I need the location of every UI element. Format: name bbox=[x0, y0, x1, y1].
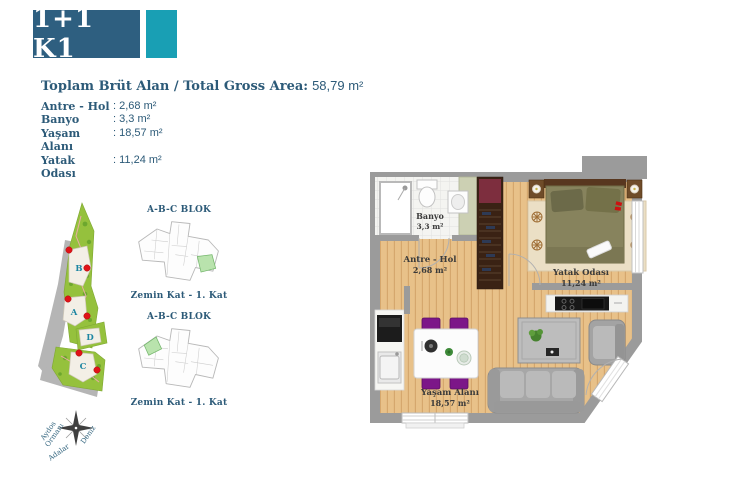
room-row-antre: Antre - Hol : 2,68 m² bbox=[41, 100, 163, 113]
compass-rose: Aydos Ormanı Deniz Adalar bbox=[26, 386, 126, 478]
label-antre: Antre - Hol bbox=[403, 255, 458, 265]
label-banyo: Banyo bbox=[416, 211, 444, 221]
badge-accent-block bbox=[146, 10, 177, 58]
highlighted-unit bbox=[197, 255, 215, 272]
wall-stub bbox=[404, 286, 410, 314]
label-yatak: Yatak Odası bbox=[552, 268, 610, 278]
block-diagram-1: A-B-C BLOK Zemin Kat - 1. Kat bbox=[126, 205, 232, 301]
total-area-heading: Toplam Brüt Alan / Total Gross Area:58,7… bbox=[41, 78, 363, 94]
total-area-label: Toplam Brüt Alan / Total Gross Area: bbox=[41, 79, 308, 94]
room-value: : 11,24 m² bbox=[113, 154, 162, 181]
label-antre-area: 2,68 m² bbox=[413, 265, 448, 275]
floor-plan-sheet: 1+1 K1 Toplam Brüt Alan / Total Gross Ar… bbox=[0, 0, 750, 500]
site-block-label-c: C bbox=[80, 362, 87, 372]
apartment-floor-plan: Banyo 3,3 m² Antre - Hol 2,68 m² Yatak O… bbox=[360, 155, 715, 465]
block-diagram-title: A-B-C BLOK bbox=[126, 205, 232, 215]
bathroom-wall bbox=[375, 235, 419, 241]
site-block-label-d: D bbox=[86, 333, 94, 343]
kitchen-counter bbox=[546, 295, 628, 312]
room-label: Antre - Hol bbox=[41, 100, 113, 113]
site-block-label-b: B bbox=[75, 264, 82, 274]
living-window bbox=[402, 413, 468, 428]
wardrobe bbox=[477, 177, 503, 289]
total-area-value: 58,79 m² bbox=[312, 78, 363, 93]
unit-type-badge: 1+1 K1 bbox=[33, 10, 140, 58]
dining-set bbox=[414, 318, 478, 389]
label-yasam-area: 18,57 m² bbox=[430, 398, 470, 408]
site-block-label-a: A bbox=[70, 308, 78, 318]
label-yatak-area: 11,24 m² bbox=[561, 278, 601, 288]
room-label: Banyo bbox=[41, 113, 113, 126]
bed bbox=[544, 179, 626, 263]
room-area-list: Antre - Hol : 2,68 m² Banyo : 3,3 m² Yaş… bbox=[41, 100, 163, 180]
bedroom-window bbox=[632, 201, 643, 273]
room-value: : 18,57 m² bbox=[113, 127, 163, 154]
room-label: Yaşam Alanı bbox=[41, 127, 113, 154]
block-diagram-caption: Zemin Kat - 1. Kat bbox=[126, 398, 232, 408]
room-row-banyo: Banyo : 3,3 m² bbox=[41, 113, 163, 126]
block-footprint-1 bbox=[129, 218, 229, 284]
block-footprint-2 bbox=[129, 325, 229, 391]
nightstand-right bbox=[627, 180, 642, 198]
bathroom-wall bbox=[452, 235, 477, 241]
room-label: Yatak Odası bbox=[41, 154, 113, 181]
room-row-yatak: Yatak Odası : 11,24 m² bbox=[41, 154, 163, 181]
nightstand-left bbox=[529, 180, 544, 198]
sofa bbox=[488, 368, 584, 413]
block-diagram-title: A-B-C BLOK bbox=[126, 312, 232, 322]
room-value: : 3,3 m² bbox=[113, 113, 150, 126]
block-diagram-2: A-B-C BLOK Zemin Kat - 1. Kat bbox=[126, 312, 232, 408]
kitchenette bbox=[375, 310, 404, 390]
block-diagram-caption: Zemin Kat - 1. Kat bbox=[126, 291, 232, 301]
label-yasam: Yaşam Alanı bbox=[420, 388, 480, 398]
living-rug bbox=[518, 318, 580, 363]
room-row-yasam: Yaşam Alanı : 18,57 m² bbox=[41, 127, 163, 154]
toilet-bowl bbox=[419, 187, 435, 207]
site-plan-map: B A D C bbox=[35, 198, 135, 403]
label-banyo-area: 3,3 m² bbox=[417, 222, 444, 231]
room-value: : 2,68 m² bbox=[113, 100, 156, 113]
